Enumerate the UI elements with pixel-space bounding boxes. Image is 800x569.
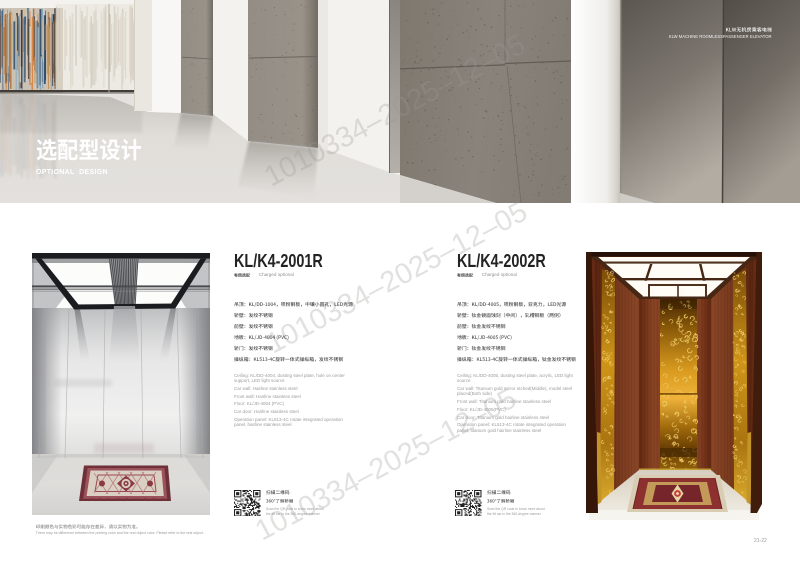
svg-text:1010334–2025–12–05: 1010334–2025–12–05 xyxy=(259,29,530,194)
